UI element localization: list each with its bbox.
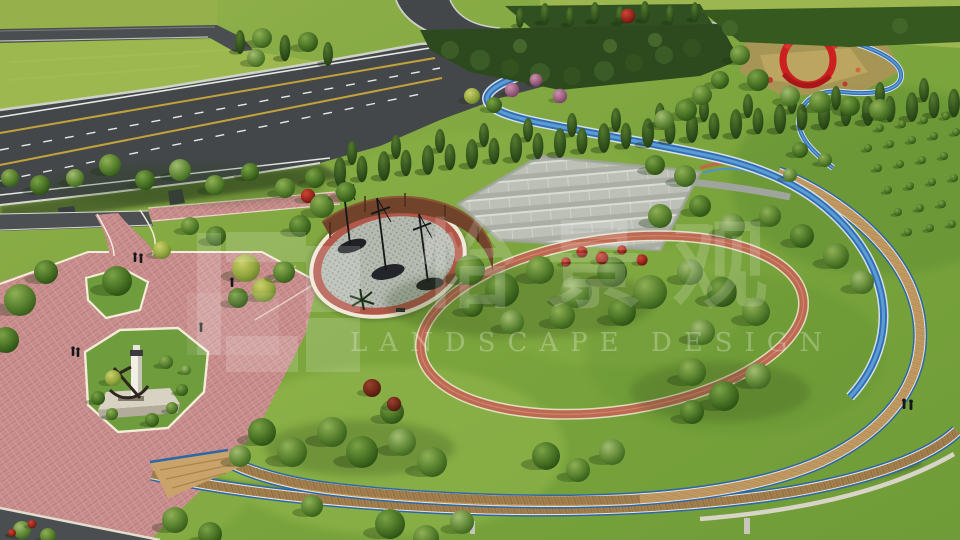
landscape-rendering: 怡景观 LANDSCAPE DESIGN (0, 0, 960, 540)
scene-canvas (0, 0, 960, 540)
distant-top-right-trees (700, 6, 960, 47)
